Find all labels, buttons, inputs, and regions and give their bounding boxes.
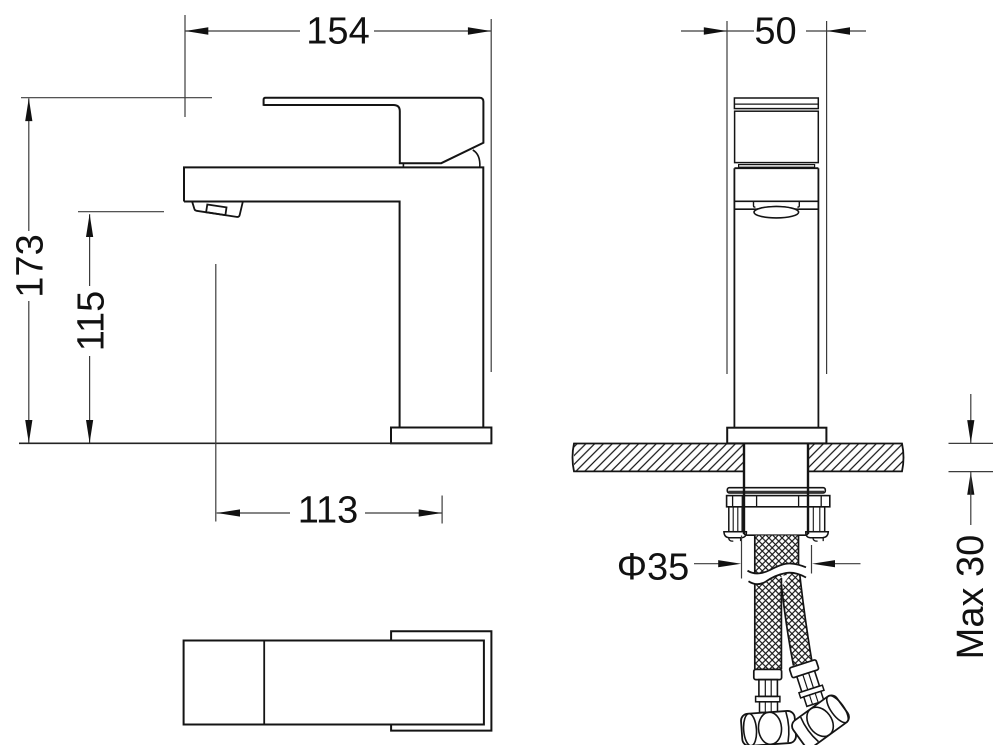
svg-text:Max 30: Max 30 xyxy=(950,535,992,660)
svg-text:173: 173 xyxy=(9,234,51,297)
svg-text:Φ35: Φ35 xyxy=(617,546,690,588)
svg-text:113: 113 xyxy=(298,489,359,531)
svg-text:115: 115 xyxy=(71,291,113,352)
svg-text:50: 50 xyxy=(754,11,796,53)
svg-text:154: 154 xyxy=(306,11,369,53)
